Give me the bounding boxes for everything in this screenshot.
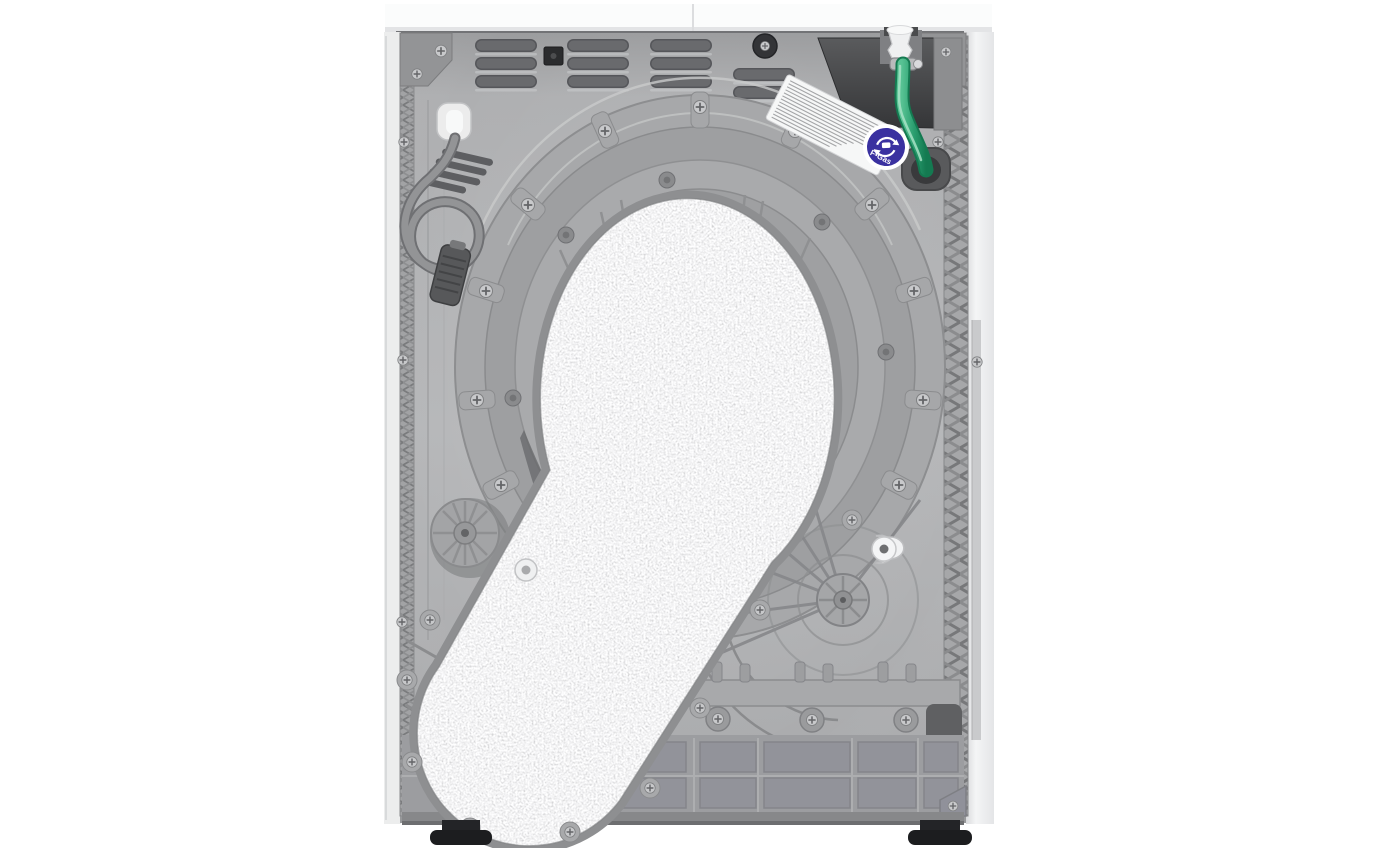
mounting-hole [753, 34, 777, 58]
lattice-strip-left [400, 36, 414, 816]
dryer-rear-photo: F-Gas [0, 0, 1380, 848]
fan-hub-wheel [817, 574, 869, 626]
cable-clip-port [544, 47, 563, 65]
white-hex-bolt [515, 559, 537, 581]
product-photo-stage: F-Gas [0, 0, 1380, 848]
